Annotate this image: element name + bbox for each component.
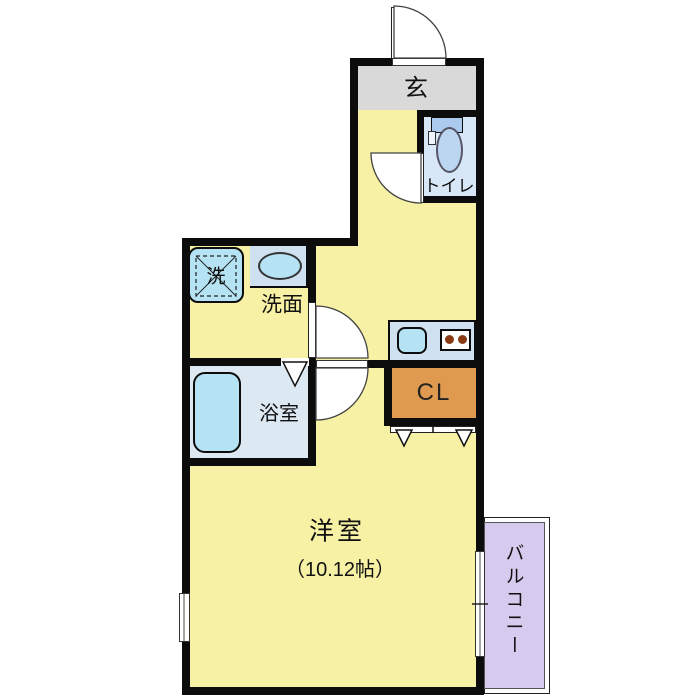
wall-toilet-top xyxy=(417,110,484,117)
toilet-bowl xyxy=(436,127,463,173)
entrance-door-leaf xyxy=(391,7,397,59)
washroom-door-leaf xyxy=(308,302,316,358)
wall-closet-bottom xyxy=(384,418,480,426)
window-balcony xyxy=(475,551,485,657)
wall-toilet-bottom xyxy=(417,196,484,203)
burner-right-icon xyxy=(458,335,467,344)
wall-bathroom-bottom xyxy=(182,458,316,466)
wall-closet-top xyxy=(384,360,480,368)
washroom-label: 洗面 xyxy=(261,295,303,316)
closet-door-track xyxy=(390,426,476,433)
vanity-sink xyxy=(258,252,302,280)
kitchen-sink xyxy=(397,327,427,354)
main-room-size-label: （10.12帖） xyxy=(285,560,395,580)
toilet-flush-handle xyxy=(428,131,436,145)
wall-closet-left xyxy=(384,360,392,426)
bathroom-door-opening xyxy=(281,358,309,366)
toilet-label: トイレ xyxy=(424,178,475,195)
main-room-label: 洋室 xyxy=(309,520,365,545)
washing-machine-label: 洗 xyxy=(206,268,225,287)
wall-bottom xyxy=(182,687,484,695)
entrance-door-swing xyxy=(394,6,446,58)
wall-washroom-top xyxy=(182,238,358,246)
floor-plan: 玄 トイレ 洗 洗面 浴室 CL 洋室 （10.12帖） バルコニー xyxy=(0,0,700,700)
wall-left-upper xyxy=(350,58,358,246)
closet-label: CL xyxy=(417,381,452,405)
main-room-door-threshold xyxy=(316,360,368,368)
balcony-label: バルコニー xyxy=(504,543,523,658)
genkan-label: 玄 xyxy=(404,77,428,101)
window-left xyxy=(179,593,190,642)
burner-left-icon xyxy=(445,335,454,344)
hallway-floor-under-toilet xyxy=(417,203,476,246)
bathroom-label: 浴室 xyxy=(259,404,299,424)
entrance-threshold xyxy=(392,58,446,66)
hallway-floor-upper xyxy=(358,110,417,246)
bathtub xyxy=(193,372,241,453)
